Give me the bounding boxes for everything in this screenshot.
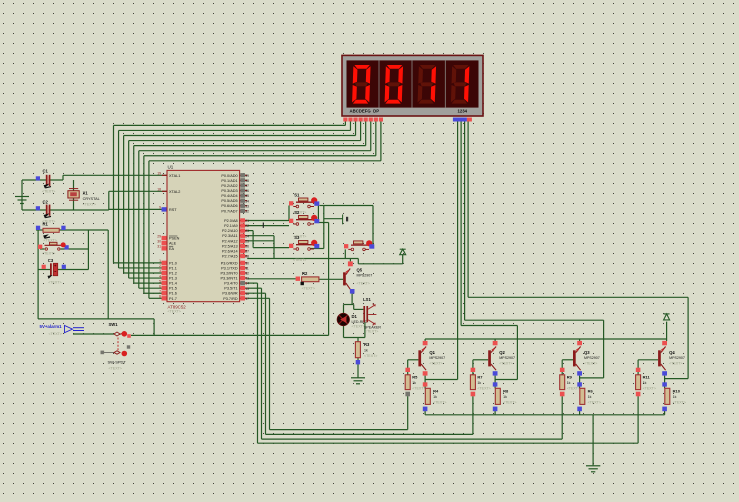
svg-text:R4: R4 — [433, 388, 439, 393]
svg-text:<TEXT>: <TEXT> — [48, 280, 61, 284]
svg-text:<TEXT>: <TEXT> — [49, 332, 62, 336]
svg-text:R6: R6 — [588, 388, 594, 393]
svg-text:S1: S1 — [294, 193, 300, 198]
svg-text:<TEXT>: <TEXT> — [584, 362, 597, 366]
svg-text:ALE: ALE — [169, 242, 177, 246]
svg-text:MPS2907: MPS2907 — [357, 274, 373, 278]
svg-text:9: 9 — [159, 206, 161, 210]
svg-text:1: 1 — [159, 259, 161, 263]
svg-text:13: 13 — [245, 277, 249, 281]
svg-text:1k: 1k — [477, 381, 481, 385]
svg-text:RST: RST — [169, 208, 177, 212]
svg-text:P3.3/INT1: P3.3/INT1 — [221, 277, 238, 281]
svg-text:MPS2907: MPS2907 — [584, 356, 600, 360]
svg-text:<TEXT>: <TEXT> — [429, 362, 442, 366]
svg-text:<TEXT>: <TEXT> — [357, 281, 370, 285]
svg-text:C3: C3 — [48, 258, 54, 263]
svg-text:P2.3/A11: P2.3/A11 — [222, 234, 237, 238]
svg-text:34: 34 — [245, 199, 249, 203]
svg-text:P2.1/A9: P2.1/A9 — [224, 224, 238, 228]
svg-text:3: 3 — [159, 269, 161, 273]
svg-text:P0.1/AD1: P0.1/AD1 — [221, 179, 237, 183]
svg-text:P2.2/A10: P2.2/A10 — [222, 229, 238, 233]
svg-text:27: 27 — [245, 250, 249, 254]
svg-text:37: 37 — [245, 184, 249, 188]
svg-text:P1.5: P1.5 — [169, 287, 177, 291]
svg-text:P0.6/AD6: P0.6/AD6 — [221, 204, 237, 208]
svg-text:EA: EA — [169, 247, 175, 251]
svg-text:<TEXT>: <TEXT> — [109, 366, 122, 370]
svg-text:P2.7/A15: P2.7/A15 — [222, 254, 238, 258]
svg-text:<TEXT>: <TEXT> — [168, 310, 181, 314]
svg-text:26: 26 — [245, 244, 249, 248]
svg-text:1234: 1234 — [458, 109, 468, 114]
svg-text:P0.7/AD7: P0.7/AD7 — [221, 209, 237, 213]
svg-text:<TEXT>: <TEXT> — [643, 387, 656, 391]
svg-text:1k: 1k — [364, 348, 368, 352]
svg-text:P3.7/RD: P3.7/RD — [223, 297, 238, 301]
svg-text:<TEXT>: <TEXT> — [567, 387, 580, 391]
svg-text:<TEXT>: <TEXT> — [293, 258, 306, 262]
svg-text:P3.6/WR: P3.6/WR — [222, 292, 237, 296]
svg-text:<TEXT>: <TEXT> — [83, 202, 96, 206]
svg-text:31: 31 — [157, 245, 161, 249]
svg-text:R2: R2 — [302, 271, 308, 276]
svg-text:R11: R11 — [643, 375, 651, 380]
svg-text:SW-SPDT: SW-SPDT — [108, 360, 127, 365]
svg-text:P2.6/A14: P2.6/A14 — [222, 249, 238, 253]
svg-text:R7: R7 — [477, 375, 483, 380]
svg-text:<TEXT>: <TEXT> — [412, 387, 425, 391]
svg-text:P3.1/TXD: P3.1/TXD — [221, 266, 238, 270]
svg-text:C2: C2 — [43, 200, 49, 205]
svg-text:25: 25 — [245, 239, 249, 243]
svg-text:23: 23 — [245, 229, 249, 233]
svg-text:4: 4 — [159, 274, 161, 278]
svg-text:Q5: Q5 — [357, 268, 363, 273]
svg-text:D1: D1 — [352, 314, 358, 319]
svg-text:SW1: SW1 — [109, 322, 119, 327]
svg-text:CRYSTAL: CRYSTAL — [83, 197, 100, 201]
svg-text:P1.6: P1.6 — [169, 292, 177, 296]
svg-text:8: 8 — [159, 294, 161, 298]
svg-text:19: 19 — [157, 172, 161, 176]
svg-text:P3.2/INT0: P3.2/INT0 — [221, 272, 238, 276]
svg-text:28: 28 — [245, 255, 249, 259]
svg-text:R9: R9 — [567, 375, 573, 380]
svg-text:1k: 1k — [433, 395, 437, 399]
svg-text:P3.4/T0: P3.4/T0 — [224, 282, 237, 286]
svg-text:12: 12 — [245, 272, 249, 276]
svg-text:S3: S3 — [294, 235, 300, 240]
svg-text:21: 21 — [245, 219, 249, 223]
svg-text:P1.4: P1.4 — [169, 282, 177, 286]
svg-text:XTAL1: XTAL1 — [169, 174, 180, 178]
svg-text:MPS2907: MPS2907 — [499, 356, 515, 360]
svg-text:P1.0: P1.0 — [169, 261, 177, 265]
svg-text:R1: R1 — [43, 221, 49, 226]
svg-text:1k: 1k — [503, 395, 507, 399]
svg-text:<TEXT>: <TEXT> — [503, 400, 516, 404]
svg-text:Q3: Q3 — [584, 350, 590, 355]
svg-text:LS1: LS1 — [363, 297, 371, 302]
svg-text:2: 2 — [159, 264, 161, 268]
svg-text:5V+alarm1: 5V+alarm1 — [40, 324, 63, 329]
svg-text:P3.0/RXD: P3.0/RXD — [221, 261, 238, 265]
svg-text:35: 35 — [245, 194, 249, 198]
svg-text:22: 22 — [245, 224, 249, 228]
svg-text:S2: S2 — [294, 210, 300, 215]
svg-text:C1: C1 — [43, 169, 49, 174]
svg-text:1k: 1k — [588, 395, 592, 399]
svg-text:6: 6 — [159, 284, 161, 288]
svg-text:P1.1: P1.1 — [169, 266, 177, 270]
svg-text:<TEXT>: <TEXT> — [42, 190, 55, 194]
svg-text:P1.3: P1.3 — [169, 277, 177, 281]
svg-text:U1: U1 — [168, 165, 174, 170]
svg-text:R3: R3 — [364, 342, 370, 347]
svg-text:14: 14 — [245, 282, 249, 286]
svg-text:24: 24 — [245, 234, 249, 238]
svg-text:<TEXT>: <TEXT> — [365, 330, 378, 334]
svg-text:P0.0/AD0: P0.0/AD0 — [221, 174, 237, 178]
svg-text:Q1: Q1 — [429, 350, 435, 355]
svg-text:<TEXT>: <TEXT> — [673, 400, 686, 404]
svg-text:P0.5/AD5: P0.5/AD5 — [221, 199, 237, 203]
svg-text:16: 16 — [245, 292, 249, 296]
svg-text:33: 33 — [245, 204, 249, 208]
svg-text:Q4: Q4 — [669, 350, 675, 355]
svg-text:AT89C52: AT89C52 — [168, 304, 187, 309]
svg-text:R10: R10 — [673, 388, 681, 393]
svg-text:Q2: Q2 — [499, 350, 505, 355]
svg-text:<TEXT>: <TEXT> — [477, 387, 490, 391]
svg-text:1k: 1k — [643, 381, 647, 385]
svg-text:P2.0/A8: P2.0/A8 — [224, 219, 238, 223]
svg-text:<TEXT>: <TEXT> — [42, 252, 55, 256]
svg-text:R8: R8 — [503, 388, 509, 393]
svg-text:<TEXT>: <TEXT> — [588, 400, 601, 404]
svg-text:<TEXT>: <TEXT> — [669, 362, 682, 366]
svg-text:<TEXT>: <TEXT> — [364, 354, 377, 358]
svg-text:1k: 1k — [673, 395, 677, 399]
svg-text:P0.2/AD2: P0.2/AD2 — [221, 184, 237, 188]
svg-text:MPS2907: MPS2907 — [429, 356, 445, 360]
svg-text:P1.7: P1.7 — [169, 297, 177, 301]
svg-text:P2.4/A12: P2.4/A12 — [222, 239, 238, 243]
svg-text:38: 38 — [245, 179, 249, 183]
svg-text:ABCDEFG DP: ABCDEFG DP — [350, 109, 380, 114]
svg-text:LED-RED: LED-RED — [352, 320, 368, 324]
svg-text:MPS2907: MPS2907 — [669, 356, 685, 360]
svg-text:<TEXT>: <TEXT> — [302, 287, 315, 291]
svg-text:<TEXT>: <TEXT> — [499, 362, 512, 366]
svg-text:X1: X1 — [83, 191, 89, 196]
svg-text:11: 11 — [245, 267, 249, 271]
svg-text:<TEXT>: <TEXT> — [433, 400, 446, 404]
svg-text:R5: R5 — [412, 375, 418, 380]
svg-text:7: 7 — [159, 289, 161, 293]
svg-text:17: 17 — [245, 297, 249, 301]
svg-text:29: 29 — [157, 234, 161, 238]
svg-text:<TEXT>: <TEXT> — [352, 325, 365, 329]
svg-text:15: 15 — [245, 287, 249, 291]
svg-text:1k: 1k — [412, 381, 416, 385]
svg-text:36: 36 — [245, 189, 249, 193]
svg-text:39: 39 — [245, 174, 249, 178]
svg-text:5: 5 — [159, 279, 161, 283]
svg-text:18: 18 — [157, 188, 161, 192]
svg-text:P2.5/A13: P2.5/A13 — [222, 244, 238, 248]
svg-text:PSEN: PSEN — [169, 237, 180, 241]
svg-text:P0.4/AD4: P0.4/AD4 — [221, 194, 237, 198]
svg-text:P0.3/AD3: P0.3/AD3 — [221, 189, 237, 193]
svg-text:P1.2: P1.2 — [169, 272, 177, 276]
svg-text:32: 32 — [245, 209, 249, 213]
svg-text:XTAL2: XTAL2 — [169, 190, 180, 194]
svg-text:30: 30 — [157, 239, 161, 243]
svg-text:P3.5/T1: P3.5/T1 — [224, 287, 237, 291]
svg-text:10: 10 — [245, 262, 249, 266]
svg-text:1k: 1k — [567, 381, 571, 385]
